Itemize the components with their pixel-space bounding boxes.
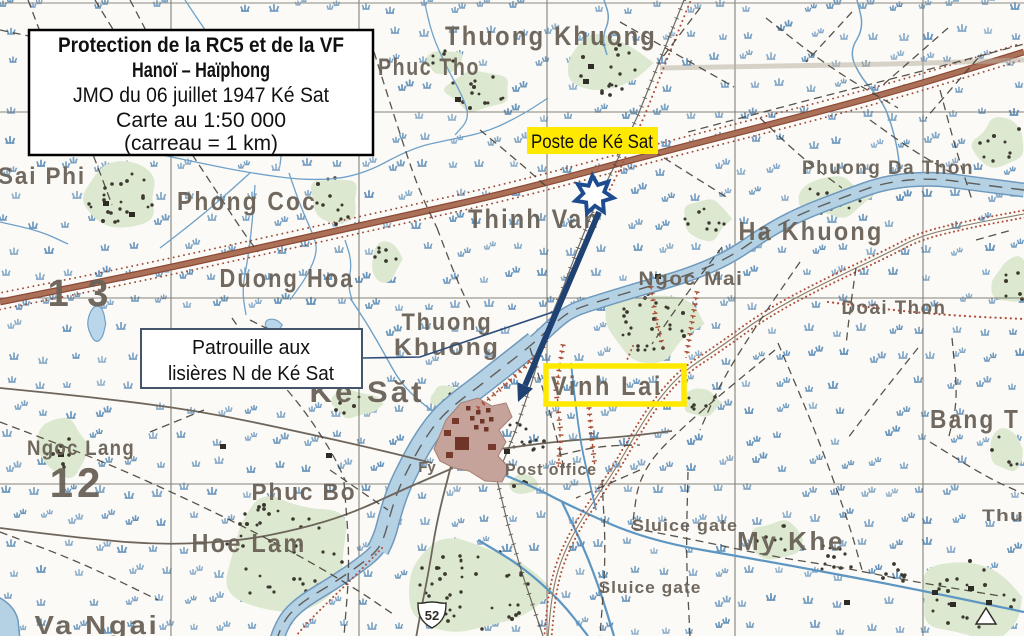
svg-text:Doai Thon: Doai Thon (842, 298, 947, 319)
svg-text:52: 52 (425, 608, 439, 623)
svg-text:Bang T: Bang T (930, 404, 1020, 434)
svg-text:Phuc Tho: Phuc Tho (378, 54, 480, 81)
svg-text:Carte au 1:50 000: Carte au 1:50 000 (116, 109, 286, 132)
svg-text:Phong Coc: Phong Coc (177, 186, 317, 216)
svg-text:(carreau = 1 km): (carreau = 1 km) (124, 132, 278, 155)
svg-text:Ngoc Mai: Ngoc Mai (639, 269, 744, 290)
svg-text:Fy: Fy (418, 459, 436, 476)
svg-text:Sluice gate: Sluice gate (599, 578, 702, 597)
svg-text:Sai Phi: Sai Phi (0, 163, 86, 190)
svg-text:Hanoï – Haïphong: Hanoï – Haïphong (132, 59, 270, 82)
svg-text:Patrouille aux: Patrouille aux (192, 337, 310, 359)
svg-text:Vinh Lai: Vinh Lai (551, 371, 663, 401)
svg-text:Thuong Khuong: Thuong Khuong (445, 21, 657, 51)
svg-text:12: 12 (50, 459, 105, 506)
svg-text:Duong Hoa: Duong Hoa (220, 263, 355, 293)
svg-text:Ha Khuong: Ha Khuong (739, 216, 884, 246)
svg-text:lisières N de Ké Sat: lisières N de Ké Sat (168, 363, 334, 385)
svg-text:Sluice gate: Sluice gate (632, 516, 738, 535)
svg-text:Hoe Lam: Hoe Lam (192, 528, 307, 558)
svg-text:Phuc Bo: Phuc Bo (252, 479, 357, 506)
svg-text:Protection de la RC5 et de la: Protection de la RC5 et de la VF (58, 34, 344, 57)
svg-text:Poste de Ké Sat: Poste de Ké Sat (531, 132, 654, 153)
svg-text:1 3: 1 3 (48, 273, 113, 315)
svg-text:Va Ngai: Va Ngai (35, 610, 160, 636)
svg-text:JMO du 06 juillet 1947 Ké Sat: JMO du 06 juillet 1947 Ké Sat (73, 84, 329, 107)
svg-text:Post office: Post office (505, 460, 597, 479)
svg-text:Ngoc Lang: Ngoc Lang (27, 437, 135, 460)
svg-text:Thu: Thu (982, 506, 1024, 525)
svg-text:My Khe: My Khe (737, 526, 845, 556)
svg-text:Thuong: Thuong (402, 309, 493, 336)
svg-text:Phuong Da Thon: Phuong Da Thon (802, 158, 974, 179)
svg-text:Thinh Van: Thinh Van (468, 204, 600, 234)
